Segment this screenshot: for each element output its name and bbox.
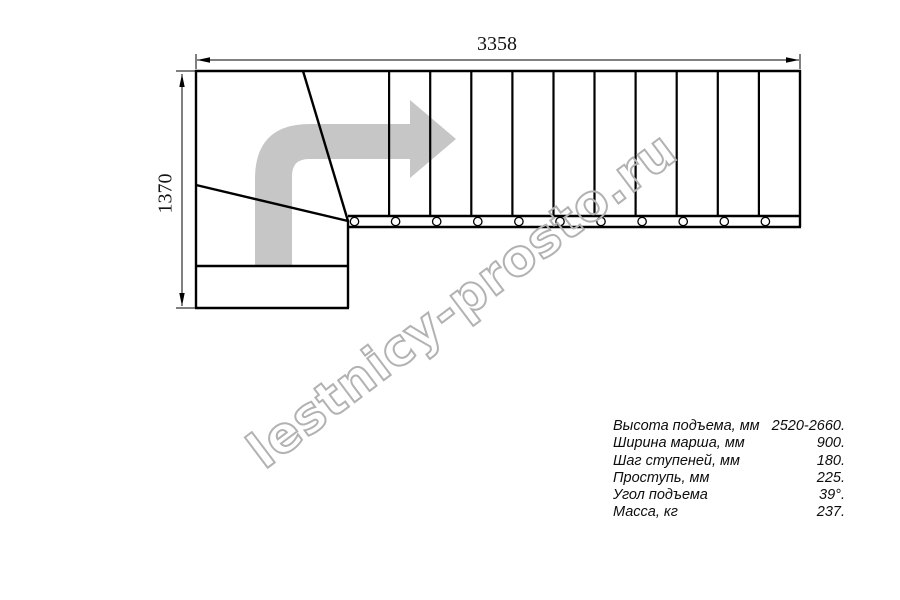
spec-label: Масса, кг — [613, 504, 678, 521]
spec-row: Ширина марша, мм 900. — [613, 435, 845, 452]
spec-value: 225. — [817, 470, 845, 487]
spec-value: 237. — [817, 504, 845, 521]
spec-value: 39°. — [819, 487, 845, 504]
direction-arrow-icon — [255, 100, 456, 266]
height-dimension-label: 1370 — [155, 154, 178, 234]
spec-row: Угол подъема 39°. — [613, 487, 845, 504]
width-dimension-label: 3358 — [467, 33, 527, 56]
spec-table: Высота подъема, мм 2520-2660. Ширина мар… — [613, 418, 845, 522]
width-dimension — [196, 54, 800, 69]
stair-plan-page: 3358 1370 lestnicy-prosto.ru Высота подъ… — [0, 0, 900, 600]
spec-label: Высота подъема, мм — [613, 418, 760, 435]
spec-value: 2520-2660. — [772, 418, 845, 435]
spec-label: Ширина марша, мм — [613, 435, 745, 452]
height-dimension — [176, 71, 196, 308]
spec-row: Шаг ступеней, мм 180. — [613, 453, 845, 470]
spec-value: 180. — [817, 453, 845, 470]
spec-value: 900. — [817, 435, 845, 452]
baluster-circles — [350, 217, 769, 225]
spec-label: Проступь, мм — [613, 470, 709, 487]
spec-row: Масса, кг 237. — [613, 504, 845, 521]
spec-label: Угол подъема — [613, 487, 708, 504]
spec-row: Высота подъема, мм 2520-2660. — [613, 418, 845, 435]
spec-row: Проступь, мм 225. — [613, 470, 845, 487]
spec-label: Шаг ступеней, мм — [613, 453, 740, 470]
